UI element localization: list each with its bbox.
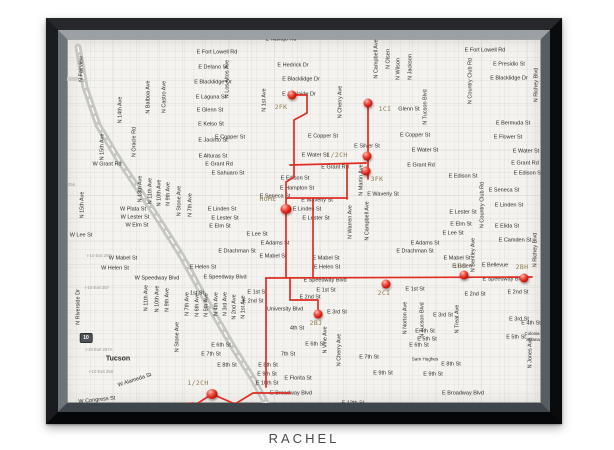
map-pin-1bi — [460, 271, 469, 280]
map-pin-12ch — [363, 152, 372, 161]
pin-code-label: 3FK — [371, 176, 384, 182]
map-pin-2ci — [382, 280, 391, 289]
pin-code-label: 2FK — [275, 104, 288, 110]
map-pin-2bh — [520, 274, 529, 283]
route-polyline — [286, 165, 294, 278]
pin-code-label: 1/2CH — [187, 380, 208, 386]
red-route-layer-svg — [67, 39, 541, 403]
map-pin-3fk — [362, 167, 371, 176]
map-pin-1ci — [364, 99, 373, 108]
artwork-caption: RACHEL — [46, 431, 562, 446]
route-polyline — [290, 278, 318, 314]
map-pin-12ch — [207, 389, 218, 399]
map-pin-2bj — [314, 310, 323, 319]
route-polyline — [266, 277, 532, 278]
pin-code-label: 2CI — [378, 290, 391, 296]
pin-code-label: 2BJ — [310, 320, 323, 326]
pin-code-label: 2BH — [516, 264, 529, 270]
pin-code-label: 1/2CH — [326, 152, 347, 158]
pin-code-label: 1CI — [379, 106, 392, 112]
tucson-street-map: E Navajo RdE Fort Lowell RdE Fort Lowell… — [67, 39, 541, 403]
map-pin-home — [281, 204, 292, 214]
frame-bevel: E Navajo RdE Fort Lowell RdE Fort Lowell… — [58, 30, 550, 412]
artwork-photo-background: E Navajo RdE Fort Lowell RdE Fort Lowell… — [0, 0, 614, 450]
framed-map-artwork: E Navajo RdE Fort Lowell RdE Fort Lowell… — [46, 18, 562, 446]
pin-code-label: 1BI — [454, 263, 467, 269]
map-pin-2fk — [288, 91, 297, 100]
home-pin-label: HOME — [260, 196, 277, 202]
picture-frame: E Navajo RdE Fort Lowell RdE Fort Lowell… — [46, 18, 562, 424]
route-polyline — [292, 95, 307, 165]
route-polyline — [290, 163, 366, 165]
